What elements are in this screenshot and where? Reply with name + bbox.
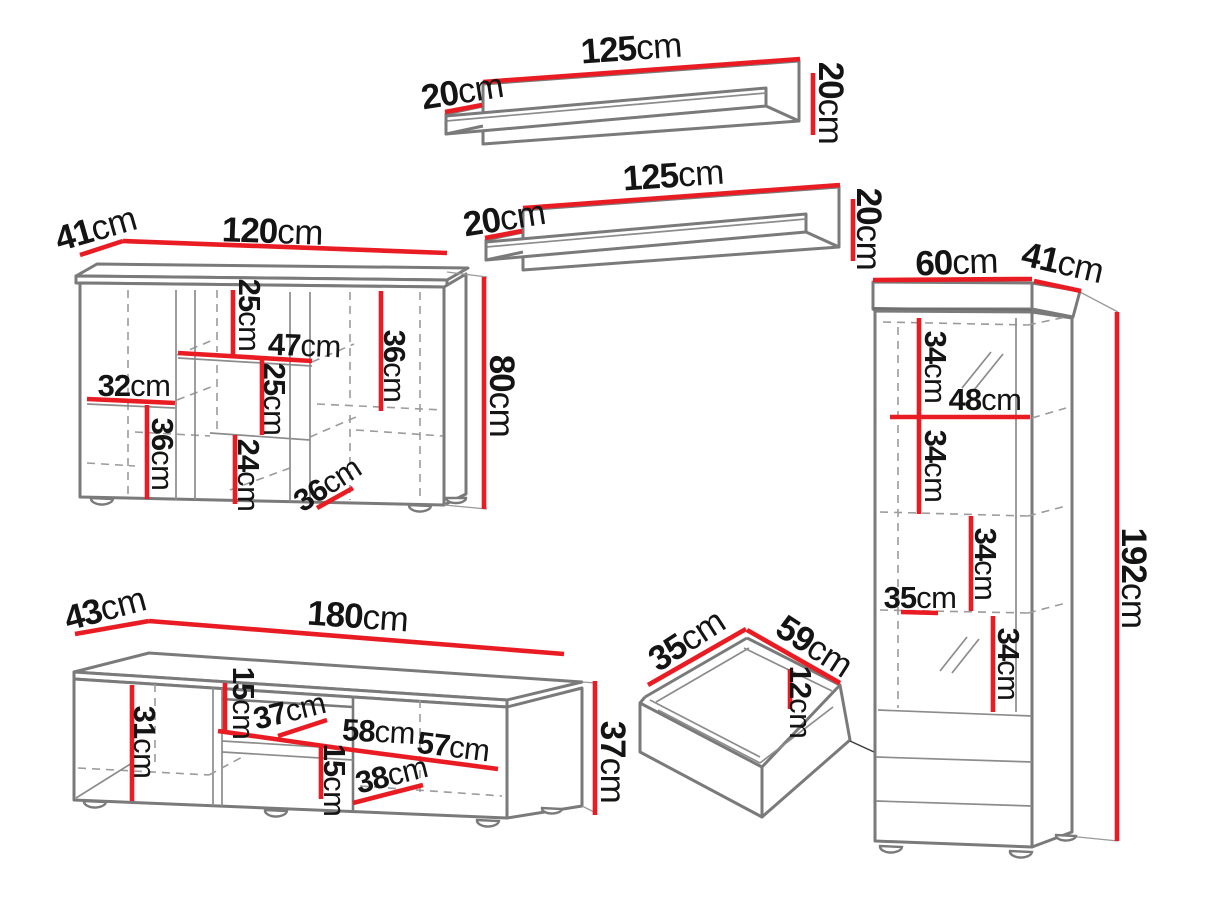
cabinet-height-label: 192cm	[1114, 527, 1153, 628]
drawer-depth-label: 35cm	[641, 602, 732, 680]
sideboard-inner-label-47: 47cm	[267, 327, 341, 365]
tall-cabinet: 60cm 41cm 192cm 34cm 48cm 34cm 34cm 35cm…	[873, 235, 1153, 858]
drawer: 35cm 59cm 12cm	[640, 602, 860, 817]
drawer-front-panel	[640, 703, 762, 817]
cabinet-inner-label-35: 35cm	[884, 580, 957, 615]
shelf1-width-label: 125cm	[579, 26, 683, 72]
cabinet-inner-label-48: 48cm	[949, 382, 1022, 417]
shelf1-height-label: 20cm	[811, 62, 850, 145]
tvstand-height-label: 37cm	[593, 721, 632, 804]
drawer-left-edge	[640, 697, 645, 703]
shelf2-width-label: 125cm	[621, 153, 725, 199]
cabinet-ext-top	[1080, 292, 1118, 312]
sideboard-inner-label-36r: 36cm	[377, 330, 412, 403]
sideboard-inner-label-36l: 36cm	[145, 418, 180, 491]
cabinet-width-label: 60cm	[915, 242, 999, 284]
sideboard: 41cm 120cm 80cm 25cm 47cm 36cm 32cm 25cm…	[51, 199, 521, 519]
wall-shelf-1: 125cm 20cm 20cm	[418, 26, 850, 145]
sideboard-side-face	[444, 274, 466, 505]
sideboard-inner-label-25b: 25cm	[257, 363, 292, 436]
cabinet-inner-label-34c: 34cm	[968, 528, 1003, 601]
tvstand-foot	[542, 808, 562, 814]
tvstand-inner-label-15b: 15cm	[317, 744, 352, 817]
cabinet-crown-front	[873, 282, 1032, 309]
cabinet-foot	[880, 846, 902, 853]
cabinet-foot	[1010, 851, 1032, 858]
tvstand-foot	[477, 820, 499, 827]
sideboard-foot	[409, 505, 431, 512]
tv-stand: 43cm 180cm 37cm 31cm 15cm 37cm 58cm 57cm…	[60, 579, 632, 826]
cabinet-inner-label-34d: 34cm	[991, 628, 1026, 701]
tvstand-width-label: 180cm	[306, 594, 410, 640]
sideboard-inner-label-25a: 25cm	[232, 279, 267, 352]
sideboard-ext-bottom	[444, 505, 487, 509]
sideboard-foot	[446, 498, 466, 503]
tvstand-foot	[84, 801, 106, 808]
wall-shelf-2: 125cm 20cm 20cm	[460, 153, 888, 271]
sideboard-inner-label-24: 24cm	[231, 439, 266, 512]
sideboard-inner-label-32: 32cm	[98, 368, 171, 403]
tvstand-foot	[265, 810, 287, 817]
cabinet-inner-label-34b: 34cm	[918, 430, 953, 503]
tvstand-side-face	[507, 688, 582, 818]
cabinet-foot	[1056, 835, 1076, 841]
sideboard-width-label: 120cm	[221, 210, 323, 253]
shelf2-height-label: 20cm	[849, 188, 888, 271]
diagram-canvas: 125cm 20cm 20cm 125cm 20cm 20cm	[0, 0, 1214, 911]
drawer-height-label: 12cm	[783, 666, 818, 739]
sideboard-foot	[91, 498, 113, 505]
tvstand-inner-label-31: 31cm	[127, 706, 162, 779]
sideboard-height-label: 80cm	[482, 355, 521, 438]
furniture-dimension-diagram: 125cm 20cm 20cm 125cm 20cm 20cm	[0, 0, 1214, 911]
cabinet-side-face	[1032, 312, 1072, 847]
